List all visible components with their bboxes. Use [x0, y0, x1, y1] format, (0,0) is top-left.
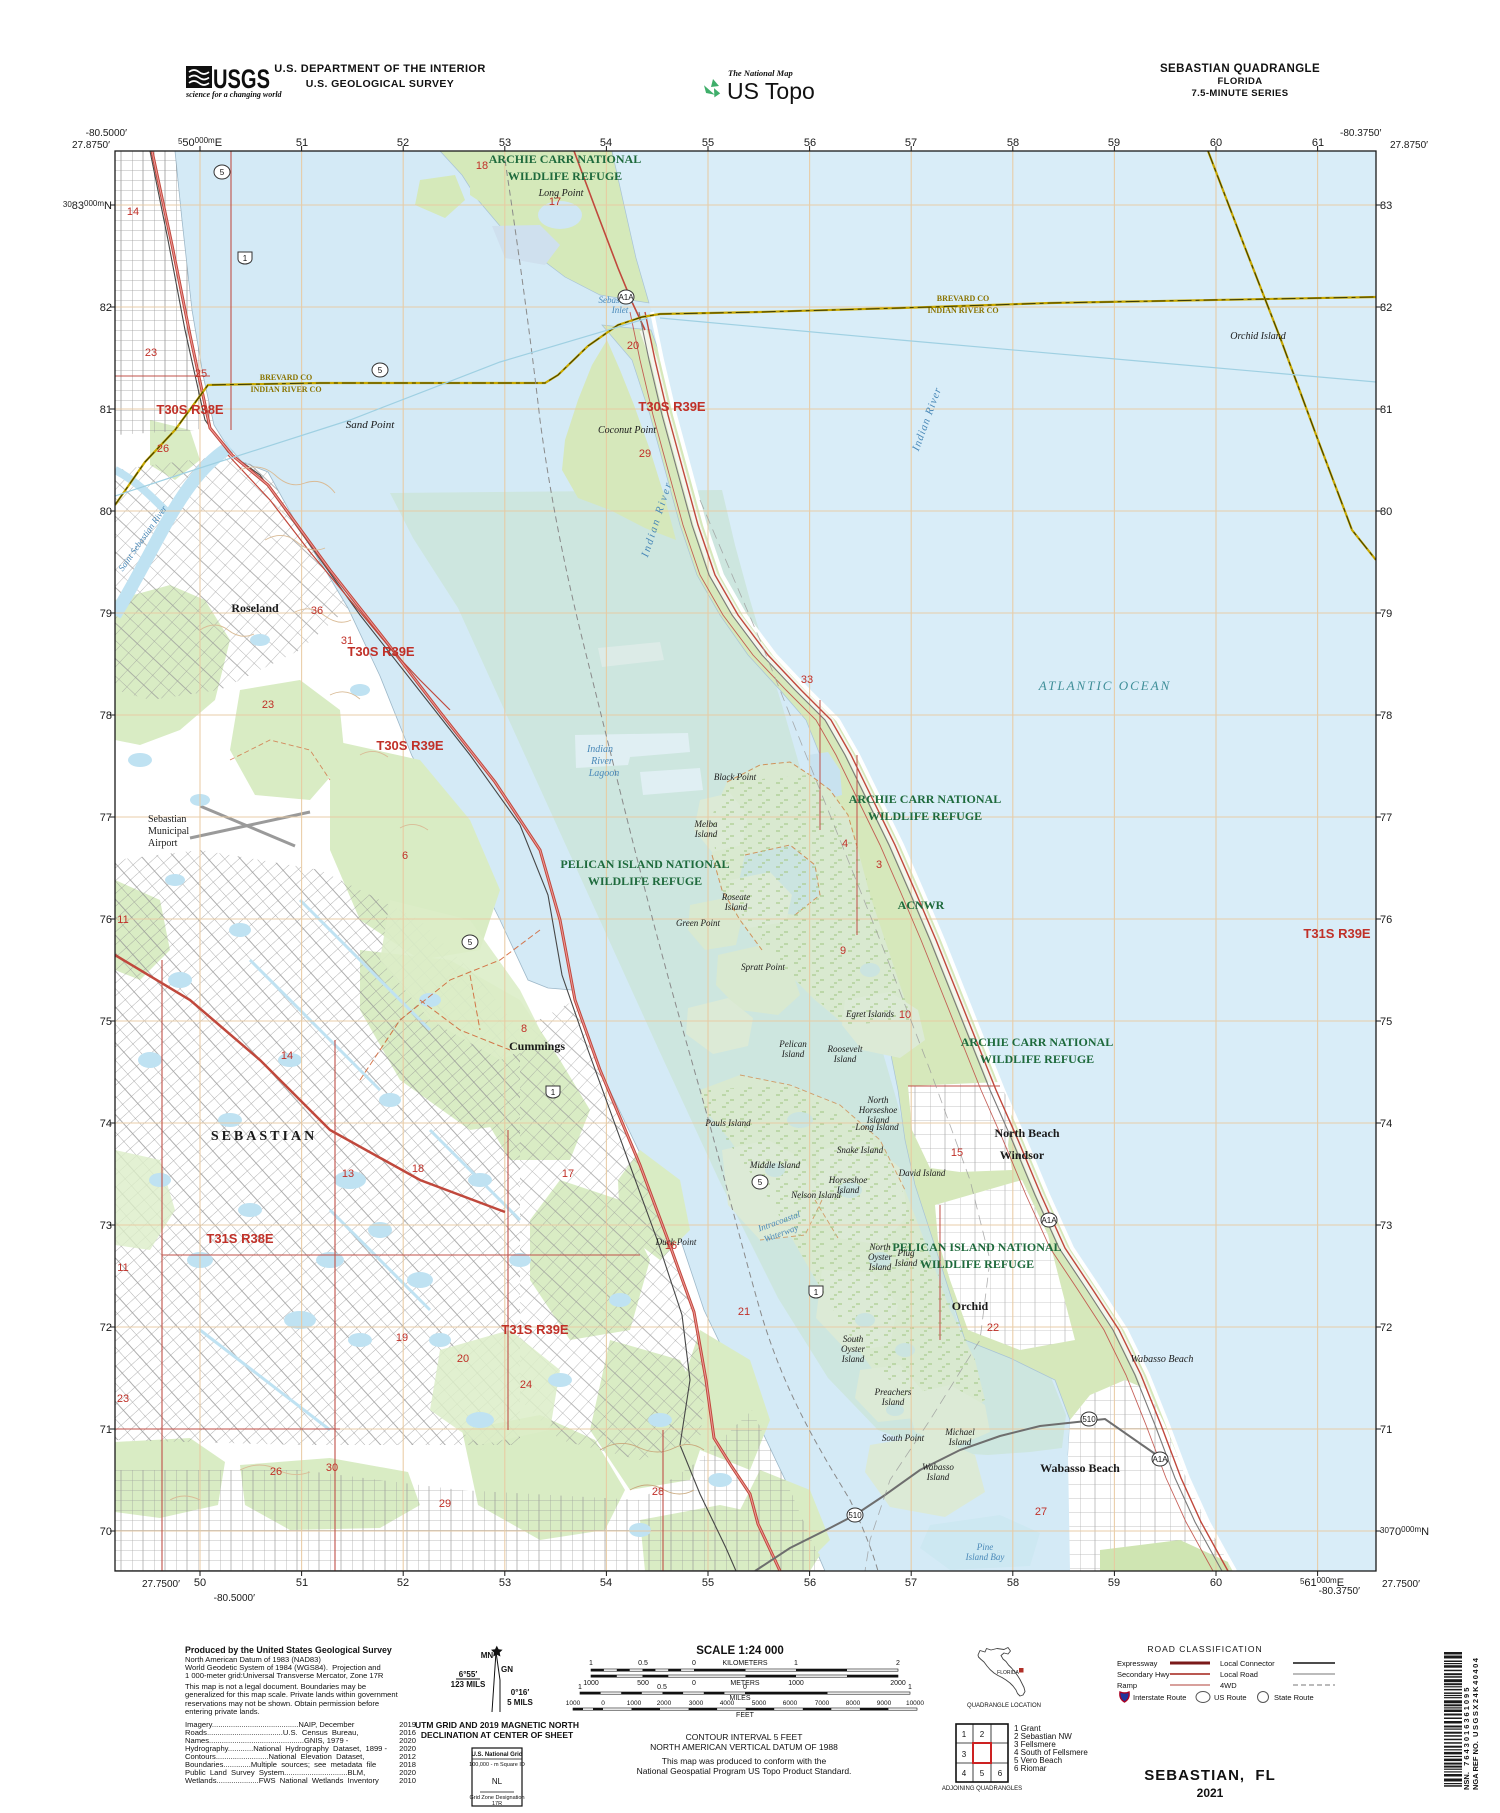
svg-text:55: 55	[702, 1577, 714, 1589]
svg-text:FLORIDA: FLORIDA	[997, 1670, 1019, 1676]
svg-text:PELICAN ISLAND NATIONAL: PELICAN ISLAND NATIONAL	[892, 1240, 1061, 1254]
svg-text:29: 29	[439, 1498, 451, 1510]
svg-text:100,000 - m Square ID: 100,000 - m Square ID	[469, 1762, 525, 1768]
svg-text:36: 36	[311, 605, 323, 617]
svg-text:28: 28	[652, 1486, 664, 1498]
svg-text:US Route: US Route	[1214, 1693, 1247, 1702]
svg-text:2021: 2021	[1197, 1786, 1224, 1800]
svg-text:T30S R39E: T30S R39E	[376, 738, 444, 753]
svg-text:71: 71	[100, 1424, 112, 1436]
svg-text:72: 72	[100, 1322, 112, 1334]
svg-text:15: 15	[951, 1147, 963, 1159]
svg-text:Airport: Airport	[148, 838, 178, 849]
svg-text:ARCHIE CARR NATIONAL: ARCHIE CARR NATIONAL	[849, 792, 1001, 806]
svg-text:2000: 2000	[657, 1700, 672, 1707]
svg-text:Ramp: Ramp	[1117, 1681, 1137, 1690]
svg-text:50: 50	[194, 1577, 206, 1589]
svg-text:77: 77	[1380, 812, 1392, 824]
svg-text:Lagoon: Lagoon	[588, 768, 620, 779]
svg-text:20: 20	[457, 1353, 469, 1365]
svg-text:60: 60	[1210, 137, 1222, 149]
svg-text:Indian: Indian	[586, 744, 613, 755]
svg-text:2: 2	[980, 1730, 985, 1739]
svg-text:27.8750′: 27.8750′	[1390, 140, 1428, 151]
svg-text:75: 75	[100, 1016, 112, 1028]
svg-text:54: 54	[600, 1577, 612, 1589]
svg-text:FLORIDA: FLORIDA	[1217, 76, 1262, 87]
svg-text:Island: Island	[833, 1054, 857, 1064]
svg-text:1: 1	[551, 1088, 556, 1097]
svg-text:FEET: FEET	[736, 1712, 755, 1719]
svg-text:73: 73	[1380, 1220, 1392, 1232]
svg-text:Secondary Hwy: Secondary Hwy	[1117, 1670, 1170, 1679]
svg-text:74: 74	[100, 1118, 112, 1130]
svg-text:5 MILS: 5 MILS	[507, 1698, 533, 1707]
svg-text:52: 52	[397, 1577, 409, 1589]
svg-text:70: 70	[100, 1526, 112, 1538]
svg-text:4000: 4000	[720, 1700, 735, 1707]
svg-text:79: 79	[1380, 608, 1392, 620]
svg-text:1 000-meter grid:Universal Tra: 1 000-meter grid:Universal Transverse Me…	[185, 1671, 384, 1680]
svg-text:19: 19	[396, 1332, 408, 1344]
svg-text:Black Point: Black Point	[714, 772, 757, 782]
svg-text:0.5: 0.5	[638, 1660, 648, 1667]
svg-text:0: 0	[743, 1684, 747, 1691]
svg-text:51: 51	[296, 137, 308, 149]
svg-text:Island: Island	[724, 902, 748, 912]
svg-text:6: 6	[998, 1769, 1003, 1778]
svg-text:WILDLIFE REFUGE: WILDLIFE REFUGE	[980, 1052, 1094, 1066]
svg-text:The National Map: The National Map	[728, 68, 793, 78]
svg-text:Island: Island	[781, 1049, 805, 1059]
svg-text:7.5-MINUTE SERIES: 7.5-MINUTE SERIES	[1191, 88, 1288, 99]
svg-text:Island: Island	[894, 1258, 918, 1268]
svg-text:59: 59	[1108, 137, 1120, 149]
svg-text:WILDLIFE REFUGE: WILDLIFE REFUGE	[588, 874, 702, 888]
svg-text:75: 75	[1380, 1016, 1392, 1028]
svg-text:1: 1	[962, 1730, 967, 1739]
svg-text:3083000mN: 3083000mN	[63, 199, 112, 212]
svg-text:Green Point: Green Point	[676, 918, 720, 928]
svg-text:60: 60	[1210, 1577, 1222, 1589]
svg-text:Horseshoe: Horseshoe	[858, 1105, 898, 1115]
svg-text:80: 80	[100, 506, 112, 518]
svg-text:River: River	[590, 756, 613, 767]
svg-text:14: 14	[281, 1050, 293, 1062]
svg-text:Cummings: Cummings	[509, 1039, 565, 1053]
svg-text:74: 74	[1380, 1118, 1392, 1130]
svg-text:T30S R39E: T30S R39E	[638, 399, 706, 414]
svg-text:Island: Island	[694, 829, 718, 839]
svg-text:79: 79	[100, 608, 112, 620]
svg-text:Orchid: Orchid	[952, 1299, 989, 1313]
svg-text:Interstate Route: Interstate Route	[1133, 1693, 1186, 1702]
svg-text:T31S R39E: T31S R39E	[1303, 926, 1371, 941]
svg-text:Spratt Point: Spratt Point	[741, 962, 785, 972]
svg-text:58: 58	[1007, 137, 1019, 149]
svg-text:South Point: South Point	[882, 1433, 925, 1443]
svg-text:17: 17	[562, 1168, 574, 1180]
svg-text:Island: Island	[841, 1354, 865, 1364]
svg-text:23: 23	[262, 699, 274, 711]
svg-text:US Topo: US Topo	[727, 78, 815, 104]
svg-text:State Route: State Route	[1274, 1693, 1314, 1702]
svg-text:510: 510	[848, 1511, 862, 1520]
svg-text:57: 57	[905, 1577, 917, 1589]
svg-text:80: 80	[1380, 506, 1392, 518]
svg-text:0.5: 0.5	[657, 1684, 667, 1691]
svg-text:22: 22	[987, 1322, 999, 1334]
svg-text:ROAD CLASSIFICATION: ROAD CLASSIFICATION	[1147, 1644, 1262, 1654]
svg-text:17R: 17R	[492, 1801, 502, 1807]
svg-text:18: 18	[412, 1163, 424, 1175]
svg-text:9: 9	[840, 945, 846, 957]
svg-text:Windsor: Windsor	[1000, 1148, 1045, 1162]
svg-text:3: 3	[962, 1750, 967, 1759]
svg-text:David Island: David Island	[898, 1168, 946, 1178]
svg-text:21: 21	[738, 1306, 750, 1318]
svg-text:6 Riomar: 6 Riomar	[1014, 1764, 1047, 1773]
svg-text:Orchid Island: Orchid Island	[1230, 331, 1286, 342]
svg-text:Michael: Michael	[944, 1427, 975, 1437]
svg-text:77: 77	[100, 812, 112, 824]
svg-text:-80.3750′: -80.3750′	[1340, 128, 1381, 139]
svg-text:13: 13	[342, 1168, 354, 1180]
svg-text:5: 5	[980, 1769, 985, 1778]
svg-text:A1A: A1A	[618, 293, 634, 302]
svg-text:1: 1	[794, 1660, 798, 1667]
svg-text:Produced by the United States: Produced by the United States Geological…	[185, 1645, 392, 1655]
svg-text:59: 59	[1108, 1577, 1120, 1589]
svg-text:24: 24	[520, 1379, 532, 1391]
svg-text:4WD: 4WD	[1220, 1681, 1237, 1690]
svg-text:30: 30	[326, 1462, 338, 1474]
svg-text:2000: 2000	[890, 1680, 906, 1687]
svg-text:A1A: A1A	[1041, 1216, 1057, 1225]
svg-text:Island: Island	[836, 1185, 860, 1195]
svg-text:Pelican: Pelican	[778, 1039, 807, 1049]
svg-text:WILDLIFE REFUGE: WILDLIFE REFUGE	[920, 1257, 1034, 1271]
svg-text:SEBASTIAN: SEBASTIAN	[211, 1129, 317, 1144]
svg-text:Coconut Point: Coconut Point	[598, 425, 656, 436]
svg-text:ARCHIE CARR NATIONAL: ARCHIE CARR NATIONAL	[961, 1035, 1113, 1049]
svg-text:52: 52	[397, 137, 409, 149]
svg-text:CONTOUR INTERVAL 5 FEET: CONTOUR INTERVAL 5 FEET	[686, 1732, 803, 1742]
svg-text:25: 25	[195, 368, 207, 380]
svg-text:1000: 1000	[583, 1680, 599, 1687]
svg-text:5000: 5000	[752, 1700, 767, 1707]
svg-text:Oyster: Oyster	[868, 1252, 892, 1262]
svg-text:T31S R38E: T31S R38E	[206, 1231, 274, 1246]
svg-text:56: 56	[804, 1577, 816, 1589]
svg-text:North: North	[866, 1095, 889, 1105]
svg-text:QUADRANGLE LOCATION: QUADRANGLE LOCATION	[967, 1703, 1041, 1709]
svg-text:Nelson Island: Nelson Island	[790, 1190, 841, 1200]
svg-text:56: 56	[804, 137, 816, 149]
svg-text:Island: Island	[948, 1437, 972, 1447]
svg-text:SEBASTIAN, FL: SEBASTIAN, FL	[1144, 1767, 1276, 1784]
svg-text:0: 0	[692, 1680, 696, 1687]
svg-text:U.S. GEOLOGICAL SURVEY: U.S. GEOLOGICAL SURVEY	[306, 78, 454, 90]
svg-text:1: 1	[243, 254, 248, 263]
svg-text:Expressway: Expressway	[1117, 1659, 1158, 1668]
svg-text:Roseate: Roseate	[721, 892, 751, 902]
svg-text:INDIAN RIVER CO: INDIAN RIVER CO	[250, 385, 321, 394]
svg-text:27.7500′: 27.7500′	[1382, 1579, 1420, 1590]
svg-text:INDIAN RIVER CO: INDIAN RIVER CO	[927, 306, 998, 315]
svg-text:14: 14	[127, 206, 139, 218]
svg-text:ATLANTIC OCEAN: ATLANTIC OCEAN	[1038, 678, 1172, 693]
svg-text:Sebastian: Sebastian	[148, 814, 186, 825]
svg-text:510: 510	[1082, 1415, 1096, 1424]
svg-text:U.S. National Grid: U.S. National Grid	[471, 1752, 522, 1758]
svg-text:27.7500′: 27.7500′	[142, 1579, 180, 1590]
svg-text:29: 29	[639, 448, 651, 460]
svg-text:KILOMETERS: KILOMETERS	[722, 1660, 767, 1667]
svg-text:Snake Island: Snake Island	[837, 1145, 884, 1155]
svg-text:Roosevelt: Roosevelt	[827, 1044, 863, 1054]
svg-text:53: 53	[499, 137, 511, 149]
svg-text:Melba: Melba	[694, 819, 718, 829]
svg-text:58: 58	[1007, 1577, 1019, 1589]
svg-text:61: 61	[1312, 137, 1324, 149]
svg-text:-80.5000′: -80.5000′	[86, 128, 127, 139]
svg-text:Pine: Pine	[976, 1542, 994, 1552]
svg-text:T30S R39E: T30S R39E	[347, 644, 415, 659]
svg-text:18: 18	[476, 160, 488, 172]
svg-text:WILDLIFE REFUGE: WILDLIFE REFUGE	[508, 169, 622, 183]
svg-text:82: 82	[1380, 302, 1392, 314]
svg-text:Wabasso Beach: Wabasso Beach	[1040, 1461, 1120, 1475]
svg-text:78: 78	[1380, 710, 1392, 722]
svg-text:Island: Island	[881, 1397, 905, 1407]
svg-text:72: 72	[1380, 1322, 1392, 1334]
svg-text:WILDLIFE REFUGE: WILDLIFE REFUGE	[868, 809, 982, 823]
svg-text:27: 27	[1035, 1506, 1047, 1518]
svg-text:27.8750′: 27.8750′	[72, 140, 110, 151]
svg-text:Middle Island: Middle Island	[749, 1160, 801, 1170]
svg-text:GN: GN	[501, 1665, 513, 1674]
svg-text:SCALE 1:24 000: SCALE 1:24 000	[696, 1645, 784, 1657]
svg-text:NORTH AMERICAN VERTICAL DATUM: NORTH AMERICAN VERTICAL DATUM OF 1988	[650, 1742, 838, 1752]
svg-text:Plug: Plug	[897, 1248, 915, 1258]
svg-text:53: 53	[499, 1577, 511, 1589]
svg-text:generalized for this map scale: generalized for this map scale. Private …	[185, 1690, 399, 1699]
svg-text:23: 23	[145, 347, 157, 359]
svg-text:78: 78	[100, 710, 112, 722]
svg-text:123 MILS: 123 MILS	[451, 1680, 486, 1689]
svg-text:33: 33	[801, 674, 813, 686]
svg-text:Oyster: Oyster	[841, 1344, 865, 1354]
svg-text:4: 4	[962, 1769, 967, 1778]
svg-text:Wabasso Beach: Wabasso Beach	[1131, 1354, 1194, 1365]
svg-text:71: 71	[1380, 1424, 1392, 1436]
svg-text:BREVARD CO: BREVARD CO	[937, 294, 990, 303]
svg-text:Island: Island	[866, 1115, 890, 1125]
svg-text:55: 55	[702, 137, 714, 149]
svg-text:ARCHIE CARR NATIONAL: ARCHIE CARR NATIONAL	[489, 152, 641, 166]
svg-text:NL: NL	[492, 1777, 503, 1786]
svg-text:2010: 2010	[399, 1776, 416, 1785]
svg-text:A1A: A1A	[1152, 1455, 1168, 1464]
svg-text:UTM GRID AND 2019 MAGNETIC NOR: UTM GRID AND 2019 MAGNETIC NORTH	[415, 1720, 579, 1730]
svg-text:NGA REF NO. USGSX24K40404: NGA REF NO. USGSX24K40404	[1471, 1657, 1480, 1790]
svg-text:76: 76	[1380, 914, 1392, 926]
svg-text:-80.5000′: -80.5000′	[214, 1593, 255, 1604]
svg-text:DECLINATION AT CENTER OF SHEET: DECLINATION AT CENTER OF SHEET	[421, 1730, 574, 1740]
svg-text:26: 26	[157, 443, 169, 455]
svg-text:76: 76	[100, 914, 112, 926]
svg-text:10: 10	[899, 1009, 911, 1021]
svg-text:54: 54	[600, 137, 612, 149]
svg-text:57: 57	[905, 137, 917, 149]
svg-text:0°16′: 0°16′	[511, 1688, 530, 1697]
svg-text:National Geospatial Program US: National Geospatial Program US Topo Prod…	[637, 1766, 852, 1776]
svg-text:ADJOINING QUADRANGLES: ADJOINING QUADRANGLES	[942, 1786, 1022, 1792]
svg-text:51: 51	[296, 1577, 308, 1589]
svg-text:16: 16	[665, 1240, 677, 1252]
svg-text:26: 26	[270, 1466, 282, 1478]
svg-text:Local Road: Local Road	[1220, 1670, 1258, 1679]
svg-text:73: 73	[100, 1220, 112, 1232]
svg-text:500: 500	[637, 1680, 649, 1687]
svg-text:5: 5	[220, 168, 225, 177]
svg-text:9000: 9000	[877, 1700, 892, 1707]
svg-text:83: 83	[1380, 200, 1392, 212]
svg-text:0: 0	[692, 1660, 696, 1667]
svg-text:Island: Island	[868, 1262, 892, 1272]
svg-text:Municipal: Municipal	[148, 826, 189, 837]
svg-text:BREVARD CO: BREVARD CO	[260, 373, 313, 382]
svg-text:3: 3	[876, 859, 882, 871]
svg-text:1: 1	[814, 1288, 819, 1297]
svg-text:Inlet: Inlet	[611, 305, 629, 315]
svg-text:4: 4	[842, 838, 848, 850]
svg-text:North: North	[868, 1242, 891, 1252]
svg-text:3070000mN: 3070000mN	[1380, 1525, 1429, 1538]
svg-text:T31S R39E: T31S R39E	[501, 1322, 569, 1337]
svg-text:5: 5	[758, 1178, 763, 1187]
svg-text:T30S R38E: T30S R38E	[156, 402, 224, 417]
svg-text:5: 5	[378, 366, 383, 375]
svg-text:Island: Island	[926, 1472, 950, 1482]
svg-text:Egret Islands: Egret Islands	[845, 1009, 894, 1019]
svg-text:17: 17	[549, 196, 561, 208]
svg-text:20: 20	[627, 340, 639, 352]
svg-text:8000: 8000	[846, 1700, 861, 1707]
svg-text:11: 11	[117, 1262, 128, 1274]
svg-text:U.S. DEPARTMENT OF THE INTERIO: U.S. DEPARTMENT OF THE INTERIOR	[274, 63, 485, 75]
svg-text:82: 82	[100, 302, 112, 314]
svg-text:Roseland: Roseland	[231, 601, 279, 615]
svg-text:6°55′: 6°55′	[459, 1670, 478, 1679]
svg-text:1: 1	[578, 1684, 582, 1691]
svg-text:North Beach: North Beach	[995, 1126, 1060, 1140]
svg-text:NSN. 7643016361095: NSN. 7643016361095	[1462, 1686, 1471, 1790]
svg-text:11: 11	[117, 914, 128, 926]
svg-text:1: 1	[589, 1660, 593, 1667]
svg-text:7000: 7000	[815, 1700, 830, 1707]
svg-text:PELICAN ISLAND NATIONAL: PELICAN ISLAND NATIONAL	[560, 857, 729, 871]
svg-text:science for a changing world: science for a changing world	[185, 90, 283, 99]
svg-text:1000: 1000	[566, 1700, 581, 1707]
svg-text:3000: 3000	[689, 1700, 704, 1707]
svg-text:MN: MN	[481, 1651, 494, 1660]
svg-text:Wetlands....................FW: Wetlands....................FWS National…	[185, 1776, 379, 1785]
svg-text:Preachers: Preachers	[874, 1387, 912, 1397]
svg-text:10000: 10000	[906, 1700, 924, 1707]
svg-text:Sand Point: Sand Point	[346, 419, 396, 431]
svg-text:-80.3750′: -80.3750′	[1319, 1586, 1360, 1597]
svg-text:Horseshoe: Horseshoe	[828, 1175, 868, 1185]
svg-text:6: 6	[402, 850, 408, 862]
svg-text:entering private lands.: entering private lands.	[185, 1707, 260, 1716]
svg-text:2: 2	[896, 1660, 900, 1667]
svg-text:Local Connector: Local Connector	[1220, 1659, 1275, 1668]
svg-text:ACNWR: ACNWR	[898, 898, 945, 912]
svg-text:1000: 1000	[788, 1680, 804, 1687]
svg-text:23: 23	[117, 1393, 129, 1405]
svg-text:Wabasso: Wabasso	[922, 1462, 954, 1472]
svg-text:0: 0	[601, 1700, 605, 1707]
svg-text:1000: 1000	[627, 1700, 642, 1707]
svg-text:6000: 6000	[783, 1700, 798, 1707]
svg-text:5: 5	[468, 938, 473, 947]
svg-text:8: 8	[521, 1023, 527, 1035]
svg-text:Island Bay: Island Bay	[965, 1552, 1005, 1562]
svg-text:1: 1	[908, 1684, 912, 1691]
svg-text:81: 81	[1380, 404, 1392, 416]
svg-text:81: 81	[100, 404, 112, 416]
svg-text:31: 31	[341, 635, 353, 647]
svg-text:Pauls Island: Pauls Island	[704, 1118, 751, 1128]
svg-text:SEBASTIAN QUADRANGLE: SEBASTIAN QUADRANGLE	[1160, 63, 1320, 75]
svg-text:South: South	[843, 1334, 864, 1344]
svg-text:This map was produced to confo: This map was produced to conform with th…	[662, 1756, 827, 1766]
